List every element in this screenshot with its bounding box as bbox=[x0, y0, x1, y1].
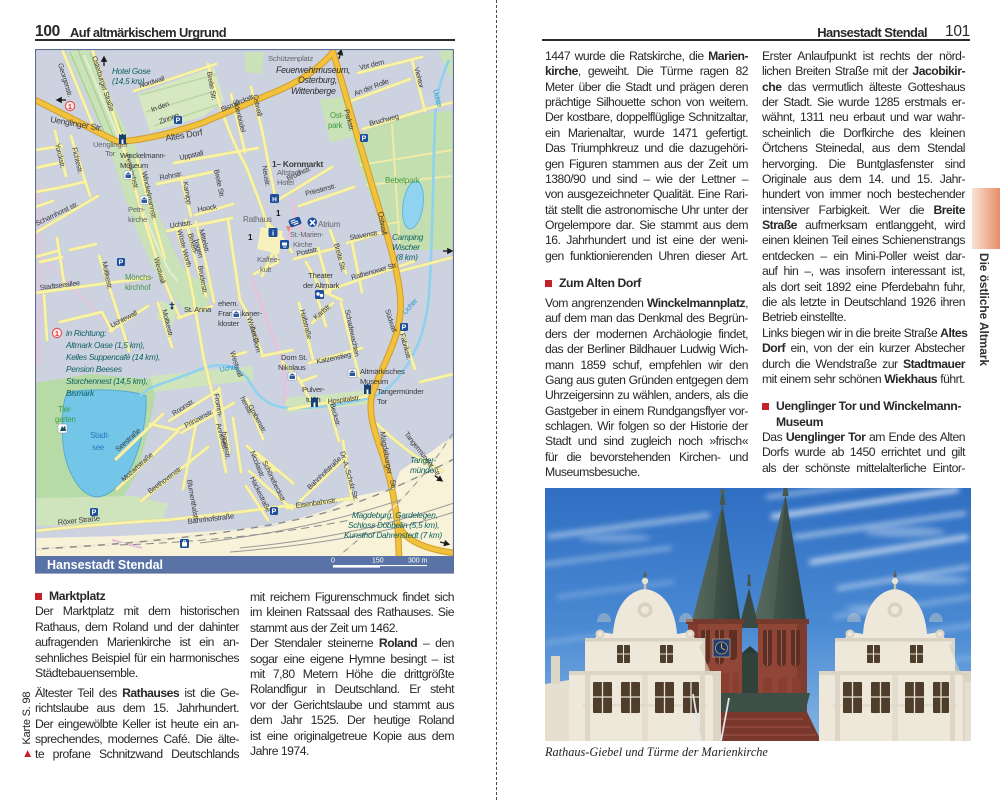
svg-text:i: i bbox=[272, 229, 274, 238]
svg-text:Storchennest (14,5 km),: Storchennest (14,5 km), bbox=[66, 377, 148, 386]
svg-text:Stadt-: Stadt- bbox=[90, 431, 110, 440]
svg-text:der Altmark: der Altmark bbox=[303, 281, 340, 290]
svg-text:Osterburg,: Osterburg, bbox=[298, 75, 337, 85]
svg-text:Pulver-: Pulver- bbox=[302, 385, 325, 394]
svg-text:P: P bbox=[272, 509, 277, 516]
svg-text:(8 km): (8 km) bbox=[396, 253, 418, 262]
svg-text:Kunsthof Dahrenstedt (7 km): Kunsthof Dahrenstedt (7 km) bbox=[344, 531, 442, 540]
svg-text:Bebelpark: Bebelpark bbox=[385, 176, 421, 185]
svg-text:Kaffee-: Kaffee- bbox=[257, 255, 281, 264]
svg-text:Tanger-: Tanger- bbox=[410, 456, 437, 465]
svg-text:park: park bbox=[328, 121, 343, 130]
svg-text:in Richtung:: in Richtung: bbox=[66, 329, 106, 338]
svg-text:P: P bbox=[176, 118, 181, 125]
svg-text:Hansestadt Stendal: Hansestadt Stendal bbox=[47, 558, 163, 572]
svg-text:garten: garten bbox=[55, 415, 76, 424]
svg-text:Magdeburg, Gardelegen,: Magdeburg, Gardelegen, bbox=[352, 511, 438, 520]
svg-text:Altstadt-: Altstadt- bbox=[277, 168, 304, 177]
svg-text:Ost-: Ost- bbox=[330, 111, 344, 120]
svg-text:Str.: Str. bbox=[388, 479, 399, 491]
svg-text:kirche: kirche bbox=[128, 215, 147, 224]
svg-text:Tier-: Tier- bbox=[58, 405, 73, 414]
svg-text:150: 150 bbox=[372, 558, 384, 565]
svg-text:300 m: 300 m bbox=[408, 558, 428, 565]
svg-text:kloster: kloster bbox=[218, 319, 240, 328]
svg-text:0: 0 bbox=[331, 558, 335, 565]
svg-text:Mönchs-: Mönchs- bbox=[125, 273, 154, 282]
svg-text:Theater: Theater bbox=[308, 271, 333, 280]
svg-text:H: H bbox=[272, 197, 277, 204]
svg-text:Dom St.: Dom St. bbox=[281, 353, 307, 362]
svg-text:Nikolaus: Nikolaus bbox=[278, 363, 306, 372]
svg-text:Altmark Oase (1,5 km),: Altmark Oase (1,5 km), bbox=[65, 341, 145, 350]
svg-text:1: 1 bbox=[55, 329, 59, 338]
svg-text:P: P bbox=[119, 260, 124, 267]
svg-text:Kelles Suppencafé (14 km),: Kelles Suppencafé (14 km), bbox=[66, 353, 160, 362]
svg-text:St. Anna: St. Anna bbox=[184, 305, 212, 314]
svg-text:Atrium: Atrium bbox=[318, 220, 341, 229]
svg-text:Tor: Tor bbox=[105, 149, 116, 158]
svg-text:Wischer: Wischer bbox=[392, 243, 420, 252]
svg-text:P: P bbox=[402, 325, 407, 332]
svg-text:see: see bbox=[92, 443, 105, 452]
svg-text:St.-Marien-: St.-Marien- bbox=[290, 230, 324, 239]
svg-text:Hotel: Hotel bbox=[277, 178, 294, 187]
svg-text:Schloss Döbbelin (5,5 km),: Schloss Döbbelin (5,5 km), bbox=[348, 521, 439, 530]
svg-text:münde: münde bbox=[410, 466, 434, 475]
svg-text:P: P bbox=[362, 136, 367, 143]
svg-text:Bismark: Bismark bbox=[66, 389, 95, 398]
svg-text:P: P bbox=[92, 510, 97, 517]
svg-text:kult: kult bbox=[260, 265, 272, 274]
svg-text:Rathaus: Rathaus bbox=[243, 215, 272, 224]
svg-text:Tangermünder: Tangermünder bbox=[377, 387, 424, 396]
svg-text:Petri-: Petri- bbox=[128, 205, 146, 214]
svg-text:kirchhof: kirchhof bbox=[125, 283, 151, 292]
svg-text:Camping: Camping bbox=[392, 233, 424, 242]
svg-text:Hotel Gose: Hotel Gose bbox=[112, 67, 151, 76]
svg-text:Tor: Tor bbox=[377, 397, 388, 406]
svg-text:1: 1 bbox=[68, 102, 72, 111]
svg-text:Feuerwehrmuseum,: Feuerwehrmuseum, bbox=[276, 65, 350, 75]
svg-text:Altmärkisches: Altmärkisches bbox=[360, 367, 405, 376]
svg-text:Pension Beeses: Pension Beeses bbox=[66, 365, 122, 374]
svg-text:Wittenberge: Wittenberge bbox=[291, 86, 336, 96]
svg-text:ehem.: ehem. bbox=[218, 299, 238, 308]
svg-text:Schützenplatz: Schützenplatz bbox=[268, 54, 313, 63]
